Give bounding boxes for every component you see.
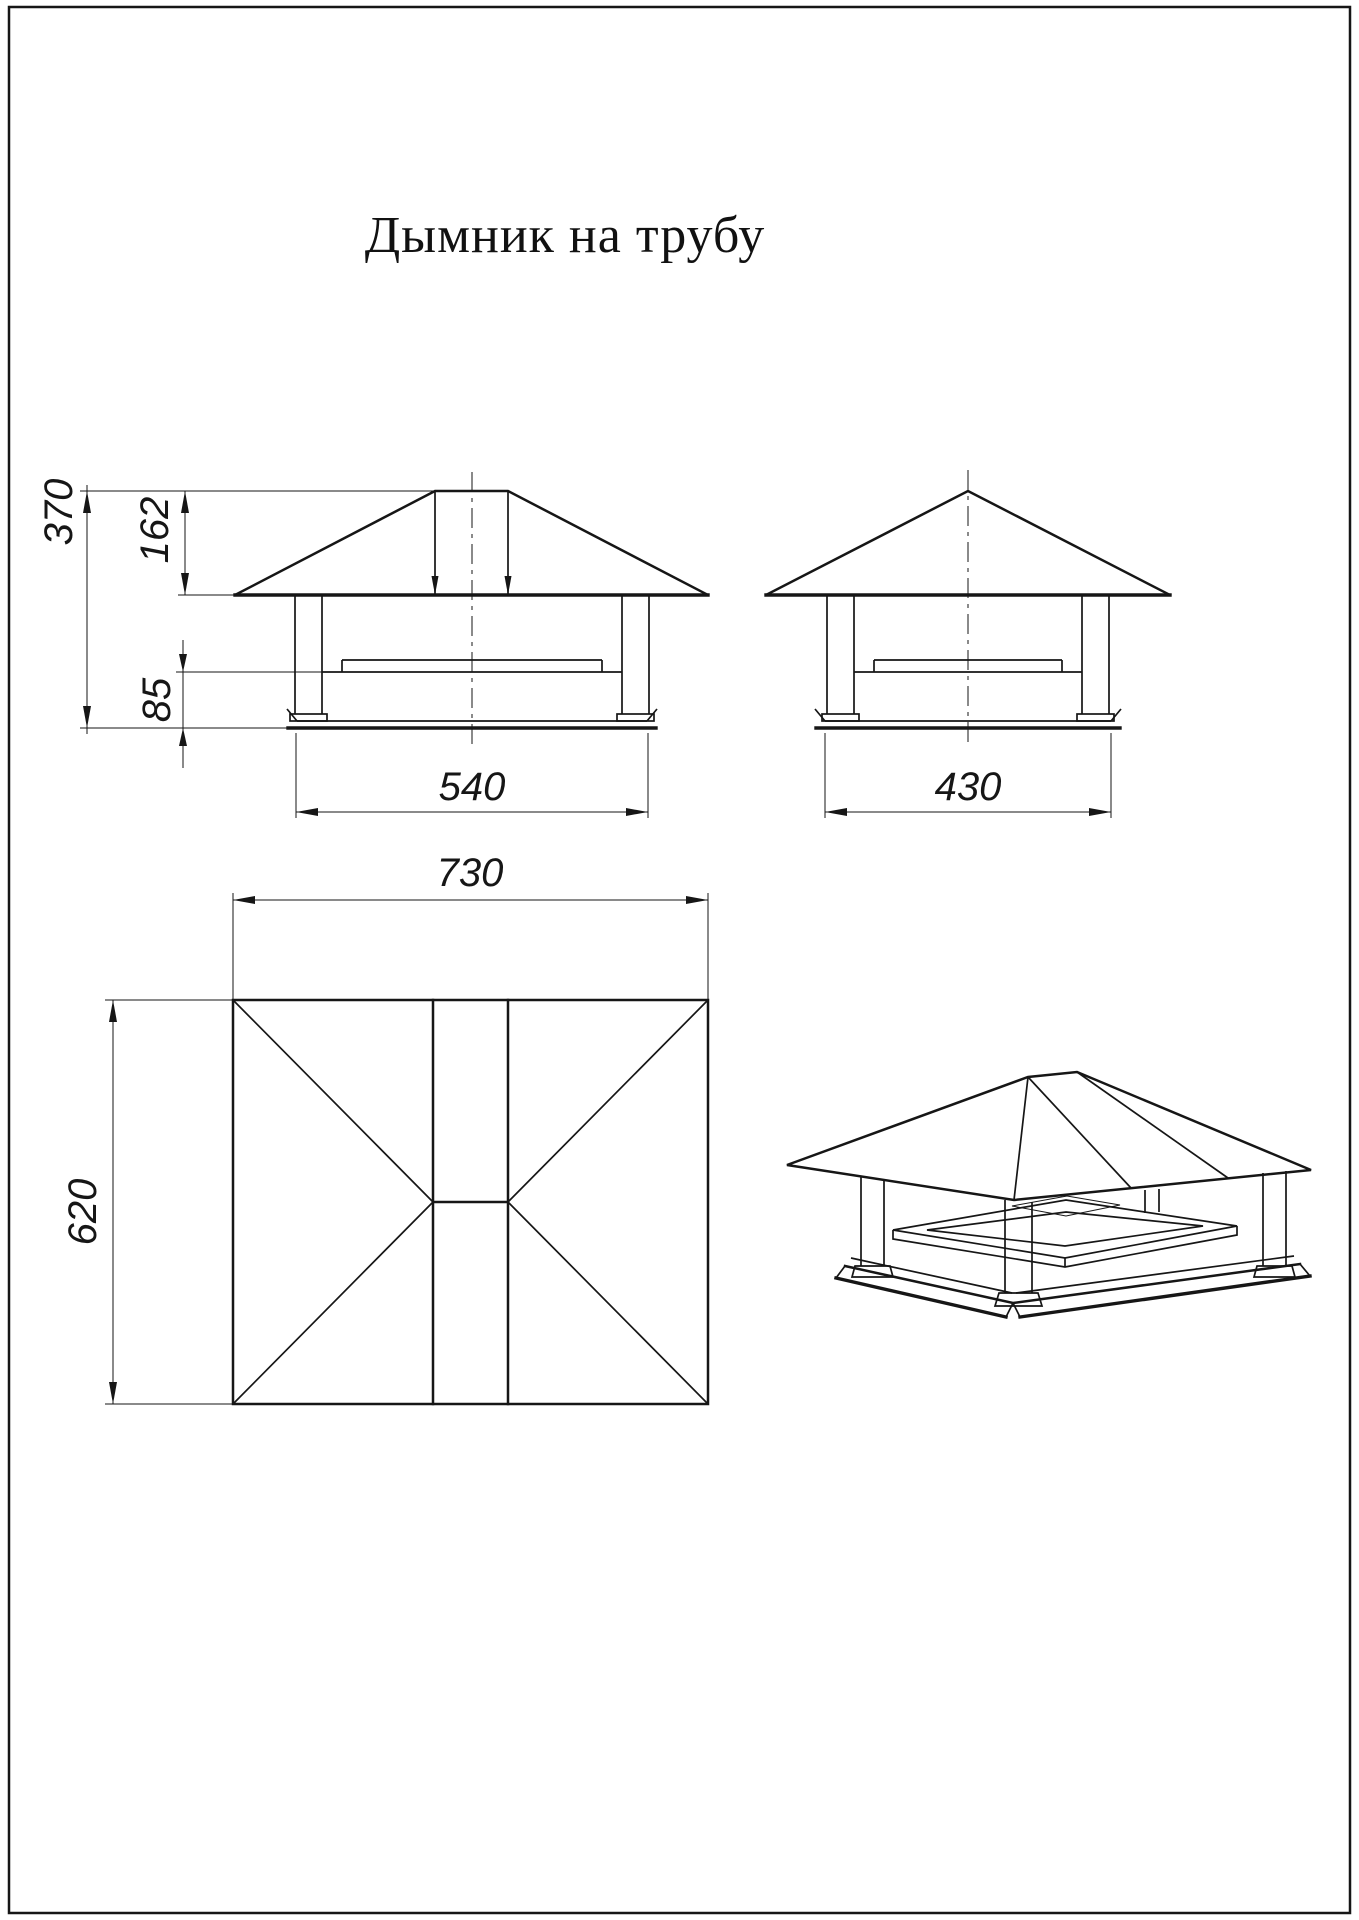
dim-label-620: 620 bbox=[61, 1179, 105, 1246]
dim-label-730: 730 bbox=[437, 851, 504, 895]
side-dim-base-width: 430 bbox=[825, 733, 1111, 818]
front-dim-roof-height: 162 bbox=[133, 491, 237, 595]
drawing-sheet: Дымник на трубу 370 162 bbox=[0, 0, 1359, 1920]
dim-label-162: 162 bbox=[133, 497, 177, 564]
page-title: Дымник на трубу bbox=[365, 207, 766, 264]
front-dim-overall-height: 370 bbox=[37, 479, 435, 734]
side-view: 430 bbox=[766, 470, 1170, 818]
sheet-border bbox=[9, 7, 1350, 1913]
dim-label-85: 85 bbox=[135, 677, 179, 722]
dim-label-540: 540 bbox=[439, 765, 506, 809]
plan-dim-depth: 620 bbox=[61, 1000, 233, 1404]
plan-dim-width: 730 bbox=[233, 851, 708, 1000]
front-dim-skirt-height: 85 bbox=[135, 640, 345, 768]
front-view: 370 162 85 540 bbox=[37, 472, 708, 818]
isometric-view bbox=[787, 1072, 1311, 1317]
plan-view: 730 620 bbox=[61, 851, 708, 1404]
dim-label-370: 370 bbox=[37, 479, 81, 546]
dim-label-430: 430 bbox=[935, 765, 1002, 809]
front-dim-base-width: 540 bbox=[296, 733, 648, 818]
